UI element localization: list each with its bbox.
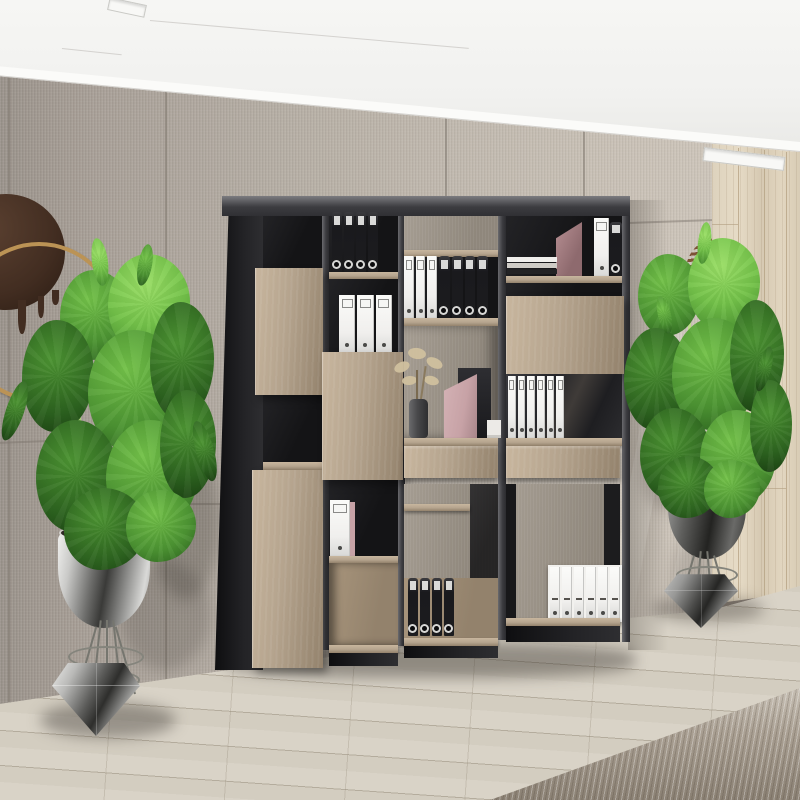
drawer-front bbox=[404, 446, 498, 478]
shelf-board bbox=[329, 645, 398, 653]
bookshelf-top-rail bbox=[222, 196, 630, 216]
open-back-cell bbox=[404, 216, 498, 252]
bookshelf-base bbox=[329, 653, 398, 666]
cabinet-door bbox=[252, 470, 323, 668]
shelf-board bbox=[404, 438, 498, 446]
potted-plant-right bbox=[600, 210, 800, 630]
shelf-cell bbox=[263, 395, 322, 470]
shelf-board bbox=[404, 504, 470, 511]
white-binders-group bbox=[404, 256, 437, 319]
shelf-cell bbox=[263, 216, 322, 268]
open-shelf-cell bbox=[329, 563, 398, 645]
white-binder bbox=[330, 500, 350, 556]
bookshelf-base bbox=[404, 646, 498, 658]
office-interior-scene bbox=[0, 0, 800, 800]
leaf-cluster bbox=[22, 320, 94, 432]
shelf-board bbox=[329, 556, 398, 563]
white-binders-group bbox=[339, 295, 392, 353]
shelf-board bbox=[404, 638, 498, 646]
leaf-cluster bbox=[704, 460, 760, 518]
shelf-board bbox=[329, 272, 398, 279]
cell-partition bbox=[470, 484, 498, 578]
small-white-box bbox=[487, 420, 501, 438]
black-binders-group bbox=[332, 212, 378, 272]
potted-plant-left bbox=[0, 230, 240, 750]
diamond-planter-base bbox=[664, 572, 738, 628]
leaf-cluster bbox=[126, 490, 196, 562]
black-binders-group bbox=[439, 256, 488, 319]
shelf-board bbox=[263, 462, 322, 470]
shelf-board bbox=[404, 318, 498, 326]
white-binders-row bbox=[508, 376, 564, 438]
dried-flower-arrangement bbox=[388, 344, 452, 404]
diamond-planter-base bbox=[52, 660, 140, 736]
leaf-cluster bbox=[750, 380, 792, 472]
black-binders-group bbox=[408, 578, 454, 636]
cabinet-door bbox=[255, 268, 323, 395]
vase bbox=[409, 399, 428, 438]
stacked-books bbox=[507, 257, 557, 276]
